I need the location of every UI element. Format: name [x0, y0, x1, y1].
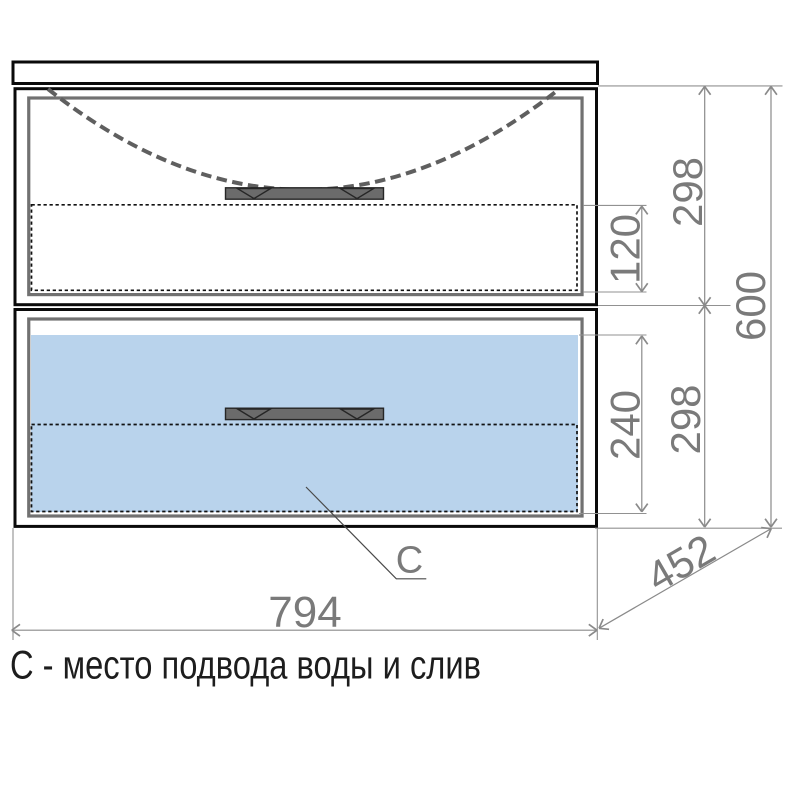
svg-text:C: C: [396, 540, 423, 582]
svg-text:794: 794: [268, 588, 341, 637]
svg-text:С - место подвода воды и слив: С - место подвода воды и слив: [10, 644, 481, 688]
svg-text:298: 298: [664, 157, 711, 227]
svg-text:120: 120: [602, 214, 649, 284]
svg-text:240: 240: [602, 390, 649, 460]
svg-text:600: 600: [727, 271, 774, 341]
svg-text:298: 298: [662, 384, 709, 454]
